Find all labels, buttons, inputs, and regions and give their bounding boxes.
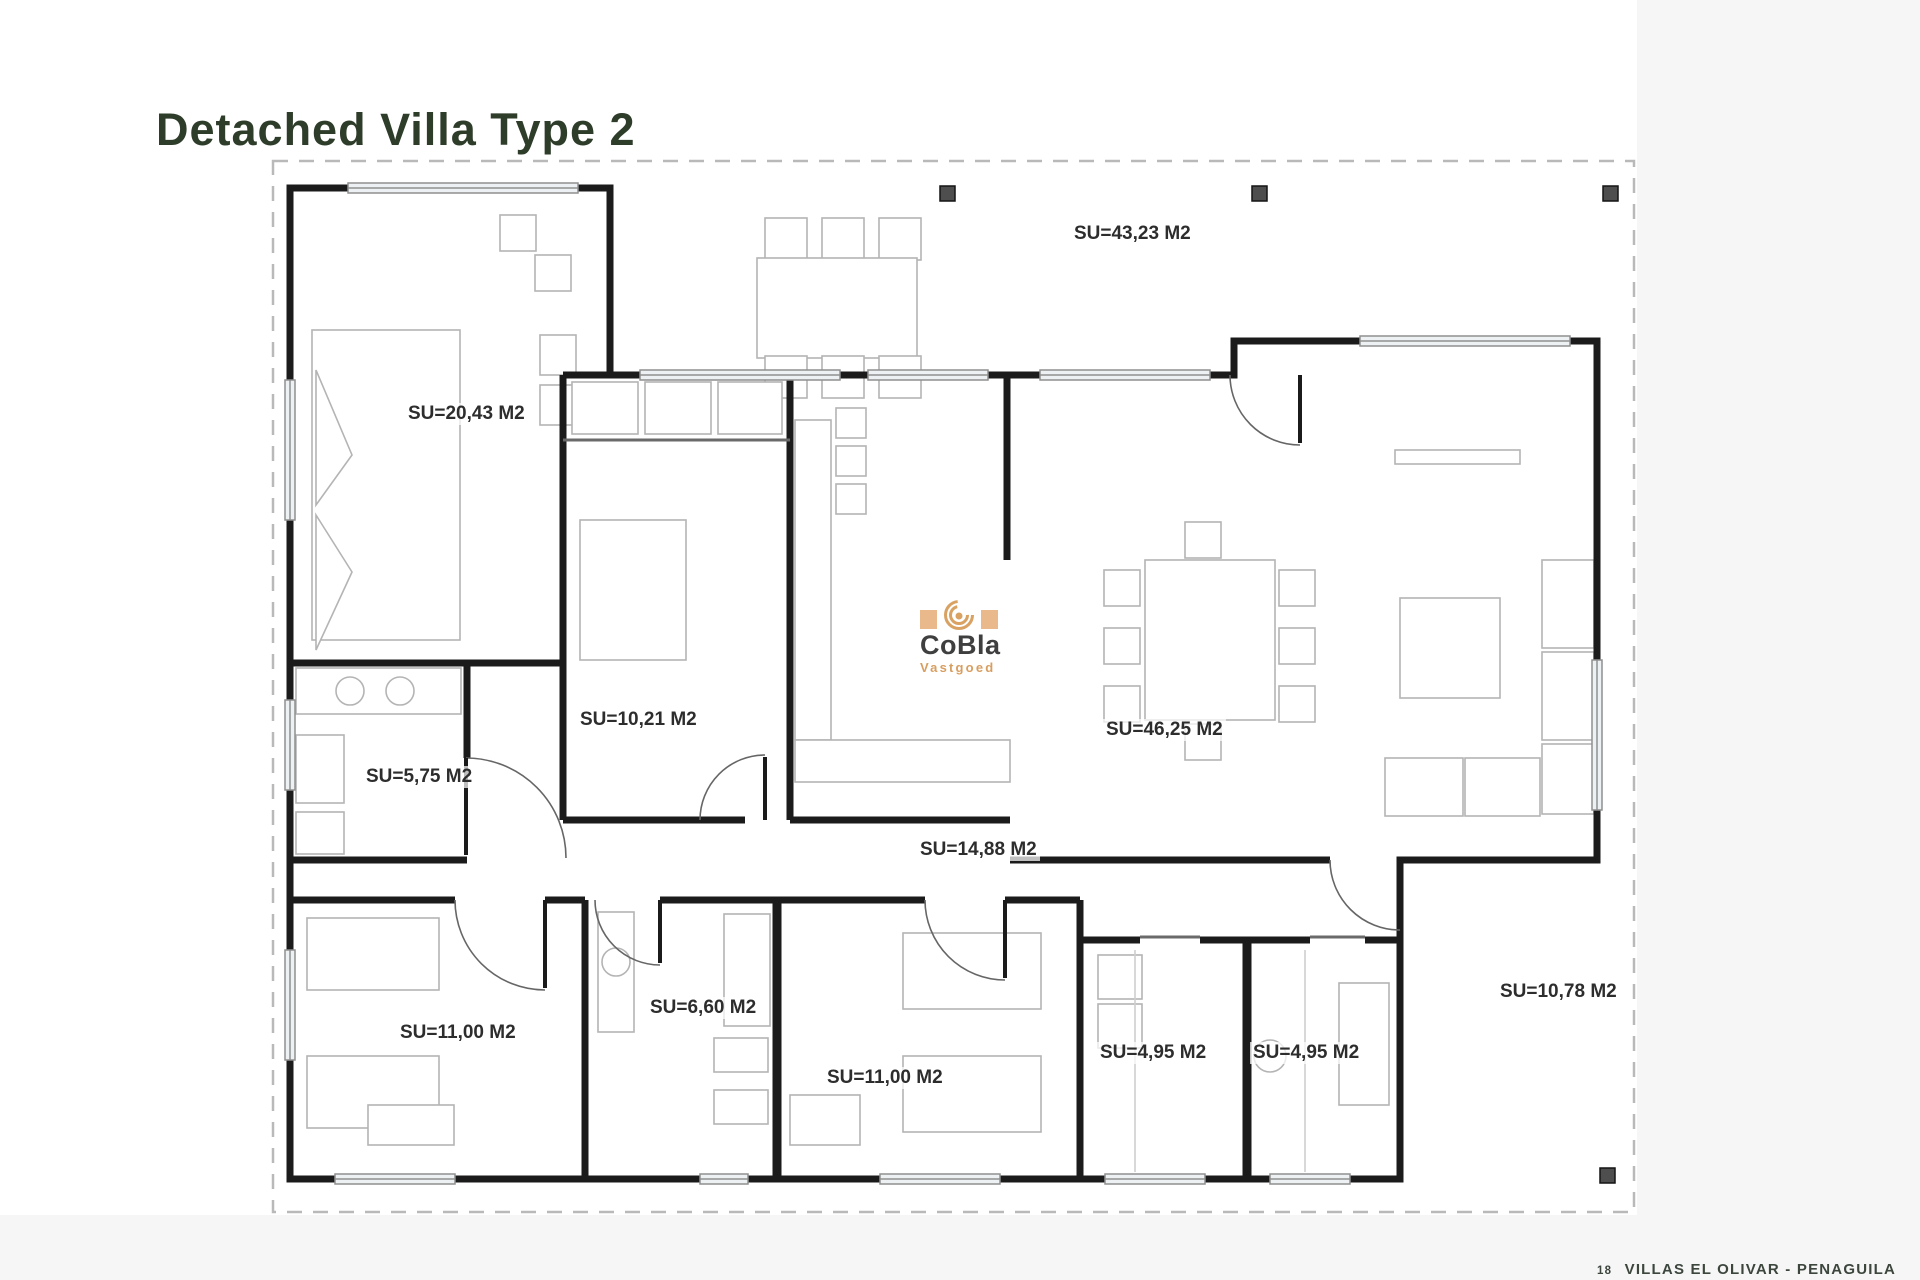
bed: [903, 933, 1041, 1009]
laundry-sink: [336, 677, 364, 705]
footer: 18 VILLAS EL OLIVAR - PENAGUILA: [1597, 1261, 1896, 1278]
dining-chair: [1279, 686, 1315, 722]
room-label-bathroom-1: SU=6,60 M2: [647, 997, 759, 1019]
column-marker: [1252, 186, 1267, 201]
watermark-brand-text: CoBla: [920, 631, 1004, 659]
footer-project-text: VILLAS EL OLIVAR - PENAGUILA: [1625, 1261, 1896, 1278]
vanity: [714, 1038, 768, 1072]
room-label-bathroom-2: SU=4,95 M2: [1250, 1042, 1362, 1064]
kitchen-counter: [795, 740, 1010, 782]
room-label-living-dining: SU=46,25 M2: [1103, 719, 1226, 741]
laundry-shelf: [296, 735, 344, 803]
column-marker: [1600, 1168, 1615, 1183]
room-label-bedroom-2: SU=10,21 M2: [577, 709, 700, 731]
dining-chair: [1104, 686, 1140, 722]
sofa-cushion: [1465, 758, 1540, 816]
logo-bar-right: [981, 610, 998, 629]
terrace-chair: [822, 218, 864, 260]
sofa-cushion: [1542, 652, 1594, 740]
footer-page-number: 18: [1597, 1265, 1612, 1277]
room-label-kitchen-hall: SU=14,88 M2: [917, 839, 1040, 861]
spiral-icon: [939, 598, 979, 631]
kitchen-counter: [795, 420, 831, 740]
wardrobe: [540, 385, 576, 425]
column-marker: [1603, 186, 1618, 201]
toilet: [602, 948, 630, 976]
tv-shelf: [1395, 450, 1520, 464]
nightstand: [535, 255, 571, 291]
closet: [572, 382, 638, 434]
kitchen-unit: [836, 408, 866, 438]
kitchen-unit: [836, 484, 866, 514]
laundry-counter: [296, 668, 461, 714]
dining-chair: [1104, 628, 1140, 664]
room-label-front-terrace: SU=43,23 M2: [1071, 223, 1194, 245]
dining-table: [1145, 560, 1275, 720]
watermark-icon-row: [920, 598, 1004, 631]
floor-plan-page: Detached Villa Type 2: [0, 0, 1920, 1280]
dresser: [790, 1095, 860, 1145]
vanity: [714, 1090, 768, 1124]
logo-bar-left: [920, 610, 937, 629]
coffee-table: [1400, 598, 1500, 698]
closet: [645, 382, 711, 434]
terrace-chair: [879, 218, 921, 260]
room-label-master-bedroom: SU=20,43 M2: [405, 403, 528, 425]
dining-chair: [1279, 570, 1315, 606]
column-marker: [940, 186, 955, 201]
nightstand: [500, 215, 536, 251]
dining-chair: [1185, 522, 1221, 558]
terrace-chair: [765, 218, 807, 260]
room-label-rear-terrace: SU=10,78 M2: [1497, 981, 1620, 1003]
closet: [718, 382, 782, 434]
room-label-bedroom-4: SU=11,00 M2: [824, 1067, 946, 1089]
room-label-utility-room: SU=4,95 M2: [1097, 1042, 1209, 1064]
dining-chair: [1104, 570, 1140, 606]
room-label-laundry: SU=5,75 M2: [363, 766, 475, 788]
laundry-sink: [386, 677, 414, 705]
sofa-cushion: [1542, 744, 1594, 814]
bed: [580, 520, 686, 660]
bed: [307, 918, 439, 990]
terrace-table: [757, 258, 917, 358]
dining-chair: [1279, 628, 1315, 664]
wardrobe: [540, 335, 576, 375]
kitchen-unit: [836, 446, 866, 476]
sofa-cushion: [1385, 758, 1463, 816]
watermark-subtitle-text: Vastgoed: [920, 660, 1004, 675]
laundry-shelf: [296, 812, 344, 854]
dresser: [368, 1105, 454, 1145]
sofa-cushion: [1542, 560, 1594, 648]
room-label-bedroom-3: SU=11,00 M2: [397, 1022, 519, 1044]
watermark-logo: CoBla Vastgoed: [920, 598, 1004, 675]
